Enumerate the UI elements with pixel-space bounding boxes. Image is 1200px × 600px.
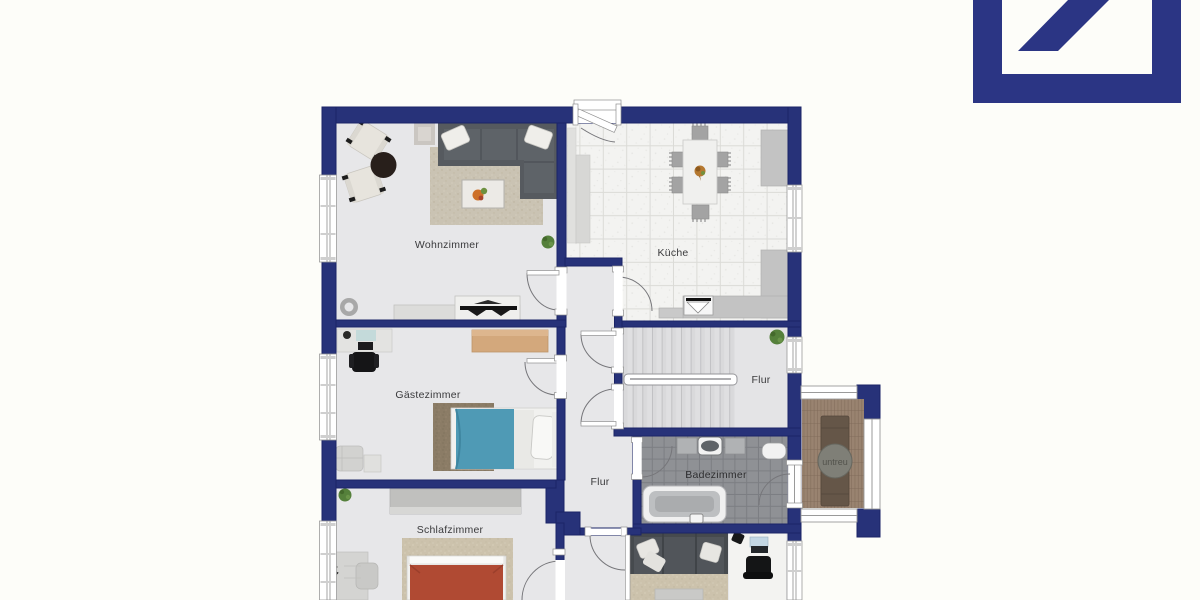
svg-text:Wohnzimmer: Wohnzimmer bbox=[415, 239, 479, 251]
svg-text:Badezimmer: Badezimmer bbox=[685, 469, 747, 481]
svg-text:Flur: Flur bbox=[590, 476, 609, 488]
svg-text:Flur: Flur bbox=[751, 374, 770, 386]
svg-text:Küche: Küche bbox=[657, 247, 688, 259]
svg-text:untreu: untreu bbox=[822, 457, 848, 467]
svg-text:Gästezimmer: Gästezimmer bbox=[395, 389, 460, 401]
svg-text:Schlafzimmer: Schlafzimmer bbox=[417, 524, 484, 536]
